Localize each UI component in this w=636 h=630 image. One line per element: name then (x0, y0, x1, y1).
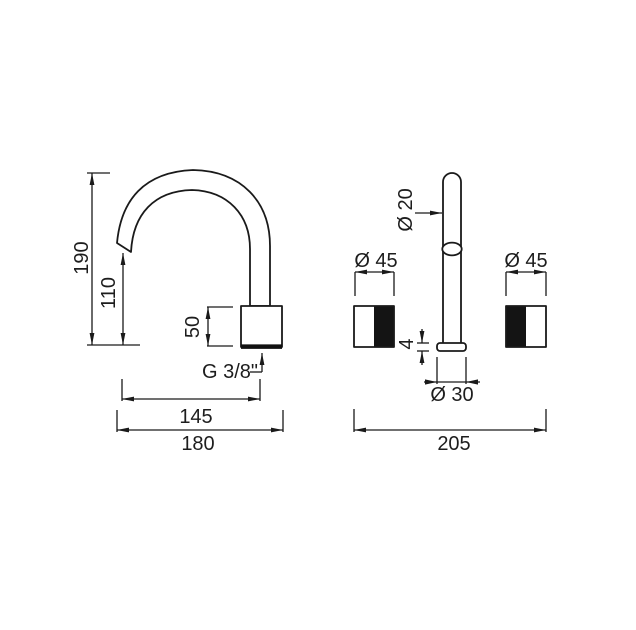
dim-label-d30: Ø 30 (430, 384, 473, 406)
dim-label-4: 4 (396, 338, 418, 349)
dim-spout-diameter: Ø 20 (395, 188, 442, 231)
dim-label-110: 110 (98, 277, 120, 309)
spout-swivel-joint (442, 243, 461, 256)
dim-label-50: 50 (182, 316, 204, 338)
dim-height-total: 190 (71, 173, 140, 345)
dim-handle-left-diameter: Ø 45 (354, 250, 397, 296)
thread-label: G 3/8" (202, 361, 258, 383)
dim-spout-reach: 145 (122, 379, 260, 428)
dim-flange-height: 4 (396, 329, 429, 365)
dim-label-145: 145 (179, 406, 212, 428)
dim-label-d20: Ø 20 (395, 188, 417, 231)
dim-spout-height: 110 (98, 253, 123, 345)
thread-callout: G 3/8" (202, 353, 262, 383)
dim-label-190: 190 (71, 241, 93, 274)
dim-width-total: 205 (354, 409, 546, 455)
dim-label-180: 180 (181, 433, 214, 455)
dim-handle-right-diameter: Ø 45 (504, 250, 547, 296)
dim-label-d45-left: Ø 45 (354, 250, 397, 272)
spout-base-body (241, 306, 282, 347)
dim-label-d45-right: Ø 45 (504, 250, 547, 272)
handle-right (506, 306, 546, 347)
spout-outline (117, 170, 270, 306)
spout-column (443, 173, 461, 343)
technical-drawing-page: 190 110 50 G 3/8" 145 (0, 0, 636, 630)
front-view: Ø 20 Ø 45 Ø 45 4 (354, 173, 548, 455)
dim-flange-diameter: Ø 30 (424, 357, 480, 406)
dim-body-height: 50 (182, 307, 233, 346)
base-flange (437, 343, 466, 351)
dim-label-205: 205 (437, 433, 470, 455)
handle-left (354, 306, 394, 347)
side-view: 190 110 50 G 3/8" 145 (71, 170, 283, 455)
faucet-dimension-drawing: 190 110 50 G 3/8" 145 (0, 0, 636, 630)
